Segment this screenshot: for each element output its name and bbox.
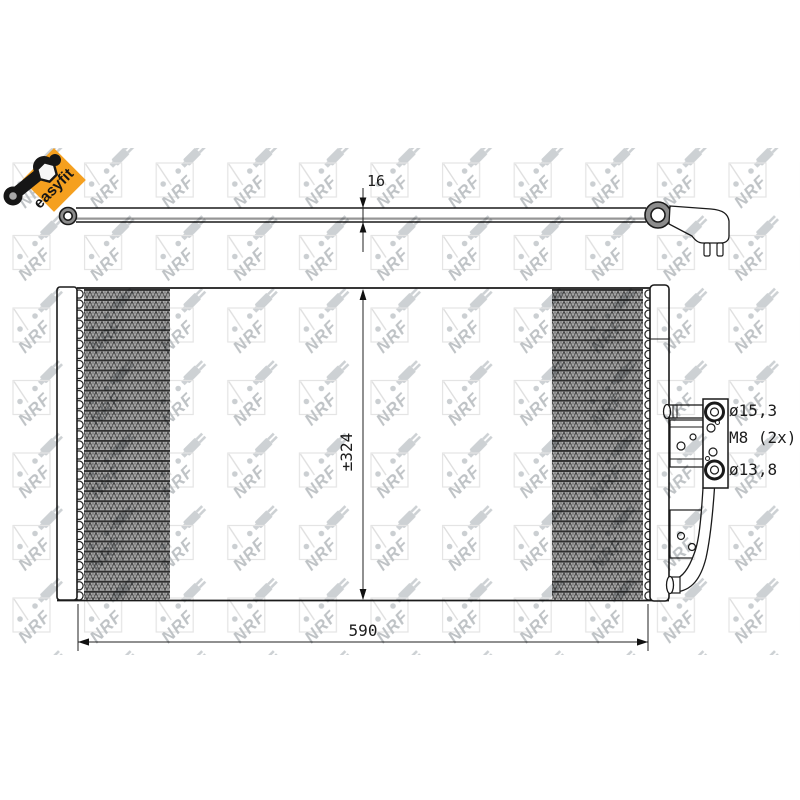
product-technical-drawing: NRF 16 <box>0 0 800 800</box>
nrf-watermark-band <box>0 148 800 655</box>
hex-nut <box>37 162 56 181</box>
condenser-diagram-canvas: NRF 16 <box>0 0 800 800</box>
